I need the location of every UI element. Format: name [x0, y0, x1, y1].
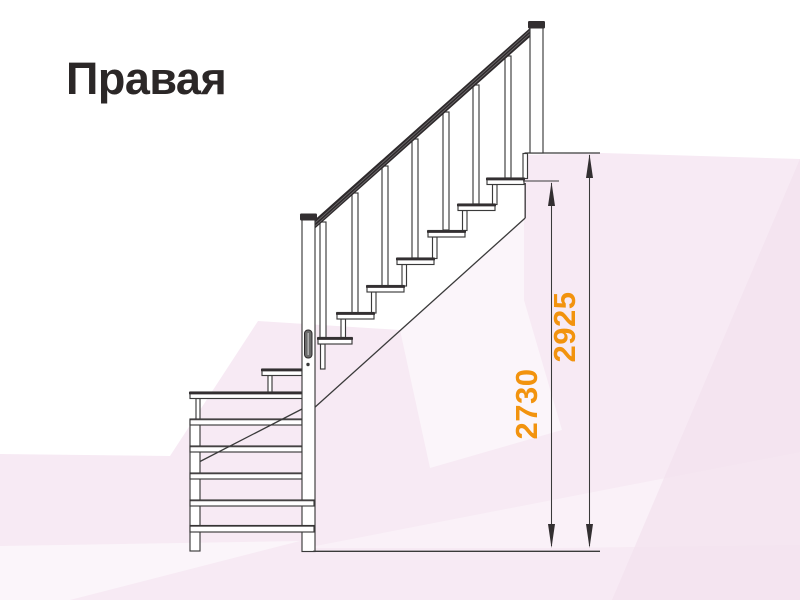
riser: [402, 265, 407, 287]
baluster: [412, 139, 418, 258]
top-newel-post: [528, 21, 545, 153]
lower-flight-bar: [190, 419, 302, 425]
diagram-page: 2730 2925 Правая: [0, 0, 800, 600]
dimension-2730-label: 2730: [509, 369, 544, 440]
riser: [196, 399, 200, 420]
riser: [268, 376, 272, 393]
riser: [433, 237, 438, 259]
lower-flight-bar: [190, 446, 302, 452]
riser: [341, 319, 346, 338]
tread: [486, 178, 525, 185]
riser: [321, 344, 326, 369]
tread: [366, 285, 405, 292]
baluster: [443, 112, 449, 230]
lower-flight-bar: [190, 473, 302, 479]
baluster: [352, 193, 358, 313]
baluster: [473, 85, 479, 204]
riser: [463, 211, 468, 231]
baluster: [505, 56, 511, 178]
lower-flight-landing-tread: [189, 392, 304, 399]
riser: [372, 292, 377, 313]
dimension-2925-label: 2925: [547, 292, 582, 363]
tread: [396, 258, 435, 265]
lower-flight-bar: [190, 525, 314, 532]
tread: [317, 337, 353, 344]
baluster: [320, 222, 326, 338]
tread: [336, 312, 375, 319]
fastener-dot: [306, 363, 309, 366]
lower-handrail-end: [305, 330, 313, 358]
riser: [523, 154, 528, 179]
diagram-title: Правая: [66, 56, 226, 101]
lower-flight-bar: [190, 500, 314, 506]
tread: [427, 230, 466, 237]
tread: [457, 204, 496, 211]
newel-cap: [528, 21, 545, 29]
newel-cap: [300, 214, 317, 221]
riser: [493, 185, 498, 205]
baluster: [382, 166, 388, 286]
